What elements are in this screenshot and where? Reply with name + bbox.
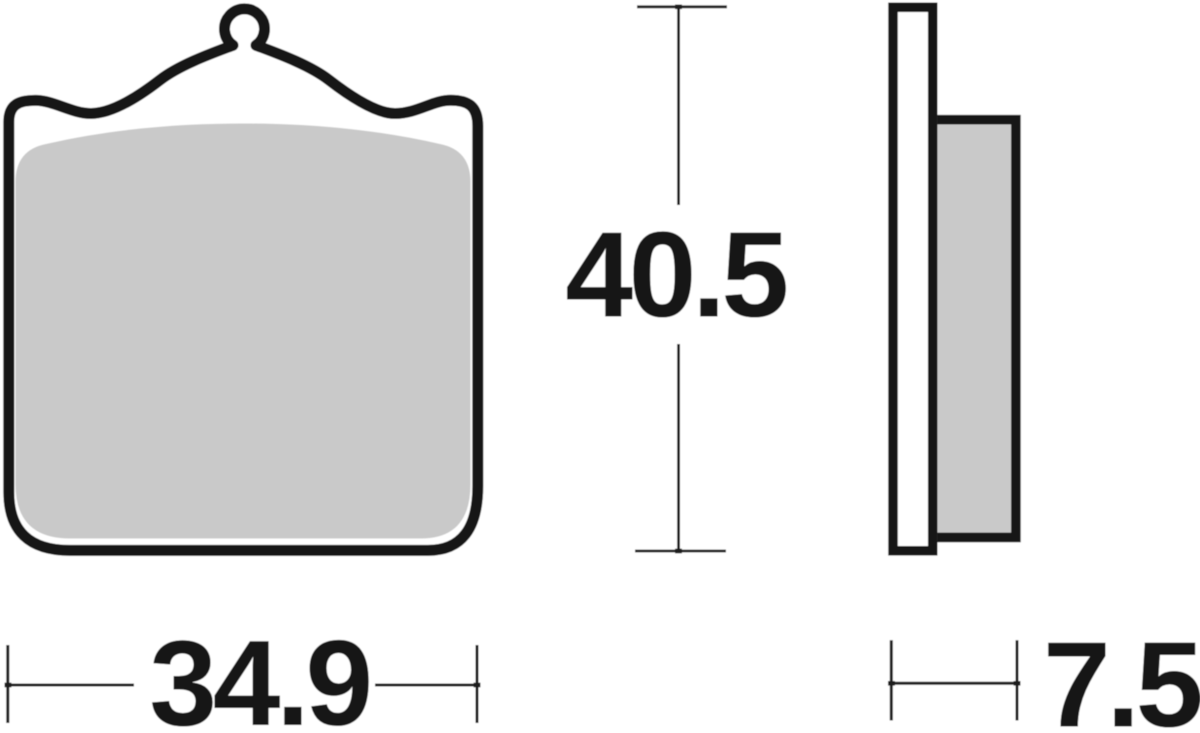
svg-text:34.9: 34.9 xyxy=(149,615,369,733)
svg-text:40.5: 40.5 xyxy=(565,206,786,342)
svg-text:7.5: 7.5 xyxy=(1043,616,1200,733)
